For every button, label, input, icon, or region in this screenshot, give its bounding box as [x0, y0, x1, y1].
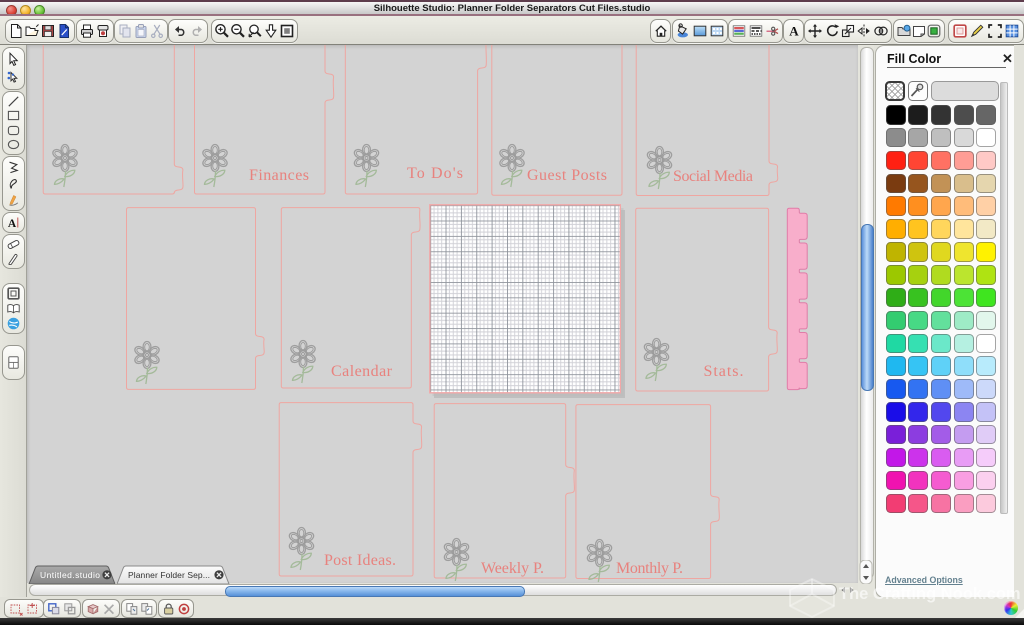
- svg-text:Calendar: Calendar: [331, 363, 393, 380]
- svg-text:Planner Folder Sep...: Planner Folder Sep...: [128, 570, 210, 580]
- svg-text:Guest Posts: Guest Posts: [527, 167, 607, 184]
- svg-text:A: A: [789, 23, 799, 38]
- svg-text:Post Ideas.: Post Ideas.: [324, 552, 396, 569]
- svg-text:A: A: [8, 218, 17, 230]
- svg-text:Untitled.studio: Untitled.studio: [40, 570, 100, 580]
- svg-text:Stats.: Stats.: [704, 363, 744, 380]
- svg-text:Monthly P.: Monthly P.: [616, 560, 683, 577]
- svg-text:Finances: Finances: [249, 167, 309, 184]
- svg-text:Weekly P.: Weekly P.: [481, 560, 544, 577]
- svg-text:To Do's: To Do's: [407, 165, 463, 182]
- svg-text:Social Media: Social Media: [673, 168, 753, 185]
